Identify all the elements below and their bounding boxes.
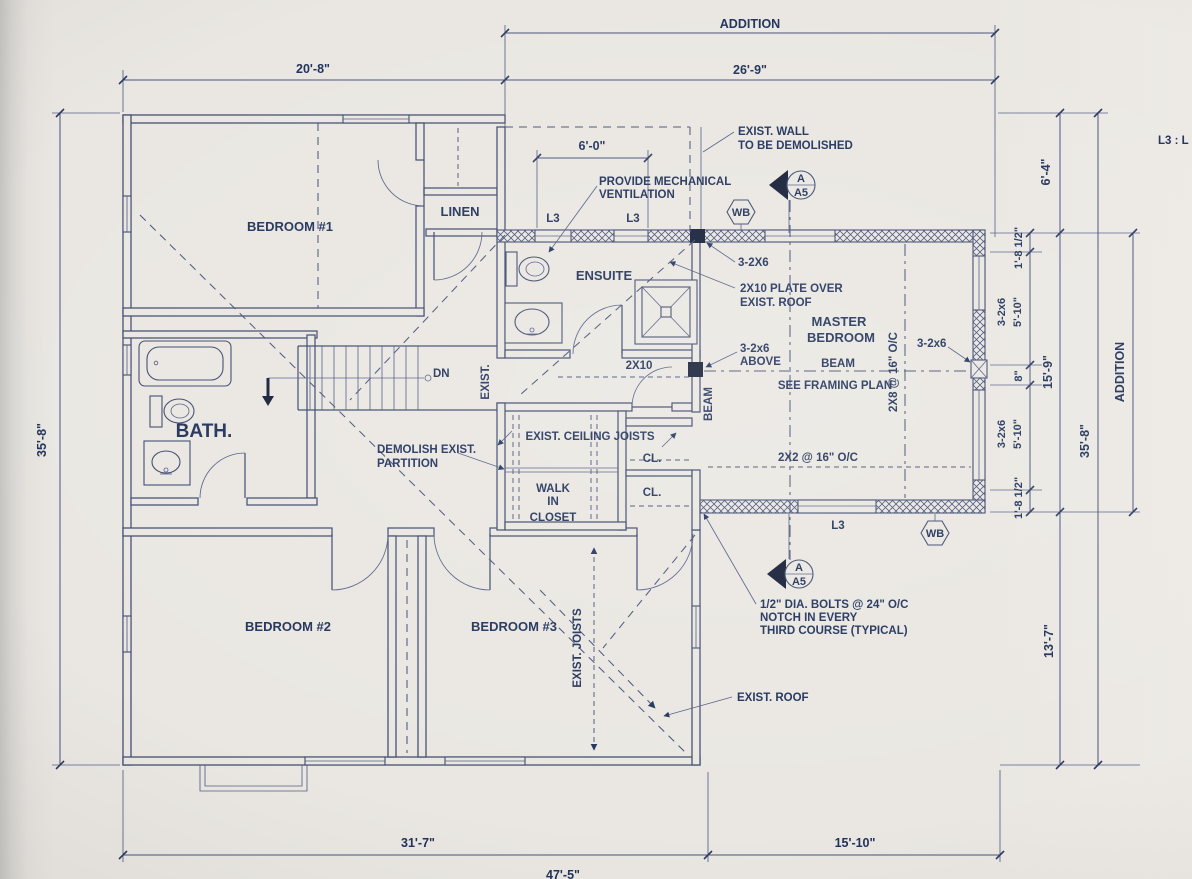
master-label-2: BEDROOM [807,330,875,345]
ensuite-sink [505,303,562,343]
note-exist-wall-2: TO BE DEMOLISHED [738,140,853,152]
bedroom3-label: BEDROOM #3 [471,619,557,634]
note-3-2x6-top: 3-2X6 [738,257,769,269]
ensuite-toilet [506,252,549,286]
note-exist-joists: EXIST. JOISTS [572,608,584,688]
door-closet-hall [632,367,672,407]
window-bedroom1-north [343,115,409,123]
section-letter: A [795,562,803,574]
ensuite-label: ENSUITE [576,268,633,283]
dim-6-4: 6'-4" [1039,158,1053,185]
wic-label-1: WALK [536,483,571,495]
note-2x2: 2X2 @ 16" O/C [778,452,858,464]
window-master-south [798,500,876,513]
dim-1-8-half-top: 1'-8 1/2" [1013,227,1025,269]
section-letter: A [797,173,805,185]
wb-label: WB [732,207,750,219]
bath-label: BATH. [176,421,233,442]
roof-hip-e [603,535,695,648]
dim-5-10-bottom: 5'-10" [1012,419,1024,449]
note-3-2x6-right: 3-2x6 [917,338,946,350]
note-vent-1: PROVIDE MECHANICAL [599,176,731,188]
window-tag-l3-1: L3 [546,213,559,225]
shower [635,280,697,344]
window-tag-l3-3: L3 [831,520,844,532]
window-bedroom2-south [305,757,385,765]
window-l3-ensuite-left [535,230,571,242]
dim-26-9: 26'-9" [733,63,767,77]
floor-plan-drawing: WB WB A A5 A A5 ADDITION 26'-9" 20'-8" 6… [0,0,1192,879]
window-left-1 [123,196,131,232]
window-master-north [765,230,835,242]
window-bedroom3-south [445,757,525,765]
note-see-framing: SEE FRAMING PLAN [778,380,892,392]
note-3-2x6-above-2: ABOVE [740,356,781,368]
note-2x8: 2X8 @ 16" O/C [888,332,900,412]
dim-35-8-left: 35'-8" [35,423,49,457]
dim-13-7: 13'-7" [1042,624,1056,658]
window-bedroom2-left [123,616,131,652]
note-bolts-3: THIRD COURSE (TYPICAL) [760,625,908,637]
wb-symbol-top: WB [727,200,755,231]
dim-6-0: 6'-0" [579,139,606,153]
window-bath [123,345,131,375]
door-bedroom3-b [637,534,693,590]
dim-47-5: 47'-5" [546,868,580,879]
roof-hip-d [540,590,655,708]
stairs-down-arrow [262,378,274,406]
wic-label-3: CLOSET [530,512,577,524]
note-plate-1: 2X10 PLATE OVER [740,283,843,295]
note-dn: DN [433,368,450,380]
note-bolts-2: NOTCH IN EVERY [760,612,858,624]
wic-label-2: IN [547,496,559,508]
note-demolish-2: PARTITION [377,458,438,470]
note-3-2x6-above-1: 3-2x6 [740,343,769,355]
note-bolts-1: 1/2" DIA. BOLTS @ 24" O/C [760,599,908,611]
dimension-labels: ADDITION 26'-9" 20'-8" 6'-0" 35'-8" 6'-4… [35,17,1127,879]
stairs [262,346,497,410]
note-beam: BEAM [821,358,855,370]
wall-3-2x6-bottom: 3-2x6 [996,420,1008,448]
note-exist-roof: EXIST. ROOF [737,692,809,704]
roof-hip-a [140,215,688,755]
dim-1-8-half-bottom: 1'-8 1/2" [1013,477,1025,519]
window-master-east-1 [973,256,985,310]
door-bedroom1 [378,160,424,206]
note-2x10: 2X10 [626,360,653,372]
blueprint-photo: WB WB A A5 A A5 ADDITION 26'-9" 20'-8" 6… [0,0,1192,879]
note-exist-wall-1: EXIST. WALL [738,126,809,138]
linen-label: LINEN [441,204,480,219]
closet1-label: CL. [643,453,662,465]
addition-top-label: ADDITION [720,17,780,31]
wall-3-2x6-top: 3-2x6 [996,298,1008,326]
dim-8: 8" [1013,370,1025,381]
window-l3-ensuite-right [614,230,648,242]
dim-5-10-top: 5'-10" [1012,297,1024,327]
note-vent-2: VENTILATION [599,189,675,201]
dim-20-8: 20'-8" [296,62,330,76]
door-bath [200,453,245,498]
post-3-2x6-beam [688,362,703,377]
legend-l3: L3 : L [1158,135,1189,147]
bath-sink [144,441,190,485]
bedroom1-label: BEDROOM #1 [247,219,333,234]
addition-right-label: ADDITION [1113,342,1127,402]
post-3-2x6-east [971,360,987,378]
door-bedroom3-a [434,534,490,590]
note-ceiling-joists: EXIST. CEILING JOISTS [525,431,654,443]
window-bedroom3-east [692,606,700,648]
post-3-2x6-top [690,229,705,243]
bath-fixtures [139,341,231,485]
note-demolish-1: DEMOLISH EXIST. [377,444,476,456]
section-sheet: A5 [792,576,806,588]
bedroom2-label: BEDROOM #2 [245,619,331,634]
master-label-1: MASTER [812,314,868,329]
closet2-label: CL. [643,487,662,499]
window-tag-l3-2: L3 [626,213,639,225]
door-linen [434,232,482,280]
dim-15-9: 15'-9" [1041,355,1055,389]
dim-35-8-right: 35'-8" [1078,424,1092,458]
section-marker-top: A A5 [769,170,815,233]
door-bedroom2 [332,534,388,590]
dim-15-10: 15'-10" [835,836,876,850]
door-ensuite [573,305,622,354]
ensuite-fixtures [505,252,697,344]
note-beam-vertical: BEAM [703,387,715,421]
wb-label: WB [926,528,944,540]
note-plate-2: EXIST. ROOF [740,297,812,309]
window-master-east-2 [973,390,985,480]
wb-symbol-bottom: WB [921,514,949,545]
note-exist-vertical: EXIST. [480,364,492,399]
dim-31-7: 31'-7" [401,836,435,850]
section-sheet: A5 [794,187,808,199]
